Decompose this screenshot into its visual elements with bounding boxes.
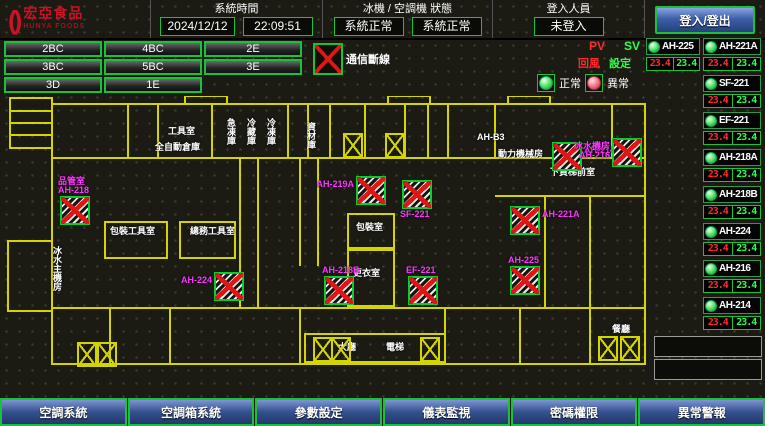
device-AH-218B[interactable]: AH-218B xyxy=(324,276,354,305)
nav-button-參數設定[interactable]: 參數設定 xyxy=(255,398,382,426)
unit-sv-value: 23.4 xyxy=(733,58,761,70)
room-label: 包裝工具室 xyxy=(110,226,155,236)
comm-fail-device-icon xyxy=(510,206,540,235)
device-label: 冰水機房AH-216 xyxy=(574,142,610,160)
device-EF-221[interactable]: EF-221 xyxy=(408,276,438,305)
unit-name: AH-221A xyxy=(719,41,757,52)
floor-plan: 工具室全自動倉庫急凍庫冷藏庫冷凍庫資材庫AH-B3動力機械房下貨梯前室包裝工具室… xyxy=(0,96,650,398)
comm-fail-icon xyxy=(313,43,343,75)
elevator-icon xyxy=(343,133,363,158)
room-label: 動力機械房 xyxy=(498,149,543,159)
unit-AH-214[interactable]: AH-21423.423.4 xyxy=(703,297,761,330)
elevator-icon xyxy=(331,337,351,362)
unit-pv-value: 23.4 xyxy=(704,317,733,329)
system-time-value: 22:09:51 xyxy=(243,17,313,36)
device-label: AH-225 xyxy=(508,256,539,265)
unit-sv-value: 23.4 xyxy=(733,132,761,144)
pv-label: PV xyxy=(589,39,605,53)
unit-pv-value: 23.4 xyxy=(704,243,733,255)
normal-led-icon xyxy=(537,74,555,92)
floor-button-5BC[interactable]: 5BC xyxy=(104,59,202,75)
device-AH-224[interactable]: AH-224 xyxy=(214,272,244,301)
system-time-label: 系統時間 xyxy=(151,2,322,16)
unit-status-led xyxy=(705,78,717,90)
elevator-icon xyxy=(420,337,440,362)
room-label: 電梯 xyxy=(386,342,404,352)
unit-AH-224[interactable]: AH-22423.423.4 xyxy=(703,223,761,256)
device-AH-219A[interactable]: AH-219A xyxy=(356,176,386,205)
comm-fail-device-icon xyxy=(408,276,438,305)
room-label: 全自動倉庫 xyxy=(155,142,200,152)
unit-pv-value: 23.4 xyxy=(647,58,674,70)
floor-button-3BC[interactable]: 3BC xyxy=(4,59,102,75)
floor-button-4BC[interactable]: 4BC xyxy=(104,41,202,57)
device-label: EF-221 xyxy=(406,266,436,275)
elevator-icon xyxy=(620,336,640,361)
abnormal-label: 異常 xyxy=(607,75,629,91)
return-air-label: 回風 xyxy=(578,55,600,71)
unit-sv-value: 23.4 xyxy=(733,243,761,255)
device-AH-218[interactable]: 品管室AH-218 xyxy=(60,196,90,225)
unit-pv-value: 23.4 xyxy=(704,206,733,218)
login-status-value: 未登入 xyxy=(534,17,604,36)
nav-button-密碼權限[interactable]: 密碼權限 xyxy=(511,398,638,426)
elevator-icon xyxy=(313,337,333,362)
comm-fail-label: 通信斷線 xyxy=(346,51,390,67)
system-date-value: 2024/12/12 xyxy=(160,17,234,36)
floor-button-2E[interactable]: 2E xyxy=(204,41,302,57)
room-label: 急凍庫 xyxy=(226,118,236,145)
hmi-screen: () 宏亞食品 HUNYA FOODS 系統時間 2024/12/12 22:0… xyxy=(0,0,765,426)
device-label: 品管室AH-218 xyxy=(58,177,89,195)
comm-fail-device-icon xyxy=(510,266,540,295)
unit-name: AH-224 xyxy=(719,226,750,237)
login-user-label: 登入人員 xyxy=(493,2,644,16)
unit-status-led xyxy=(705,226,717,238)
device-label: AH-224 xyxy=(181,276,212,285)
unit-sv-value: 23.4 xyxy=(733,206,761,218)
unit-SF-221[interactable]: SF-22123.423.4 xyxy=(703,75,761,108)
room-label: 餐廳 xyxy=(612,324,630,334)
unit-pv-value: 23.4 xyxy=(704,132,733,144)
brand-logo: () 宏亞食品 HUNYA FOODS xyxy=(0,0,150,38)
hvac-status-label: 冰機 / 空調機 狀態 xyxy=(323,2,492,16)
room-label: 冷藏庫 xyxy=(246,118,256,145)
room-label: 總務工具室 xyxy=(190,226,235,236)
device-SF-221[interactable]: SF-221 xyxy=(402,180,432,209)
unit-name: AH-218A xyxy=(719,152,757,163)
header: () 宏亞食品 HUNYA FOODS 系統時間 2024/12/12 22:0… xyxy=(0,0,765,40)
unit-AH-218A[interactable]: AH-218A23.423.4 xyxy=(703,149,761,182)
device-label: AH-218B xyxy=(322,266,360,275)
device-label: SF-221 xyxy=(400,210,430,219)
room-label: 包裝室 xyxy=(356,222,383,232)
comm-fail-device-icon xyxy=(214,272,244,301)
unit-EF-221[interactable]: EF-22123.423.4 xyxy=(703,112,761,145)
unit-status-led xyxy=(705,152,717,164)
unit-pv-value: 23.4 xyxy=(704,95,733,107)
device-AH-225[interactable]: AH-225 xyxy=(510,266,540,295)
device-AH-216[interactable]: 冰水機房AH-216 xyxy=(612,138,642,167)
unit-status-led xyxy=(705,189,717,201)
elevator-icon xyxy=(77,342,97,367)
login-logout-button[interactable]: 登入/登出 xyxy=(655,6,755,34)
unit-sv-value: 23.4 xyxy=(733,169,761,181)
unit-pv-value: 23.4 xyxy=(704,58,733,70)
elevator-icon xyxy=(598,336,618,361)
unit-AH-225[interactable]: AH-22523.423.4 xyxy=(646,38,700,71)
floor-buttons: 2BC4BC2E3BC5BC3E3D1E xyxy=(4,41,308,93)
unit-AH-221A[interactable]: AH-221A23.423.4 xyxy=(703,38,761,71)
unit-status-led xyxy=(705,41,717,53)
unit-name: AH-218B xyxy=(719,189,757,200)
nav-button-空調箱系統[interactable]: 空調箱系統 xyxy=(128,398,255,426)
chiller-status-value: 系統正常 xyxy=(334,17,404,36)
room-label: 冰水主機房 xyxy=(52,246,62,291)
sv-label: SV xyxy=(624,39,640,53)
empty-unit-slot xyxy=(654,359,762,380)
comm-fail-device-icon xyxy=(356,176,386,205)
floor-button-3E[interactable]: 3E xyxy=(204,59,302,75)
unit-name: SF-221 xyxy=(719,78,749,89)
room-label: 工具室 xyxy=(168,126,195,136)
unit-name: AH-225 xyxy=(662,41,693,52)
unit-status-led xyxy=(705,300,717,312)
unit-AH-218B[interactable]: AH-218B23.423.4 xyxy=(703,186,761,219)
room-label: 冷凍庫 xyxy=(266,118,276,145)
footer-nav: 空調系統空調箱系統參數設定儀表監視密碼權限異常警報 xyxy=(0,398,765,426)
floor-button-2BC[interactable]: 2BC xyxy=(4,41,102,57)
unit-sv-value: 23.4 xyxy=(733,280,761,292)
unit-name: AH-216 xyxy=(719,263,750,274)
comm-fail-device-icon xyxy=(402,180,432,209)
unit-pv-value: 23.4 xyxy=(704,169,733,181)
unit-name: EF-221 xyxy=(719,115,749,126)
room-label: AH-B3 xyxy=(477,132,505,142)
brand-logo-icon: () xyxy=(8,7,19,33)
room-label: 資材庫 xyxy=(306,122,316,149)
normal-label: 正常 xyxy=(559,75,581,91)
comm-fail-device-icon xyxy=(612,138,642,167)
floor-button-3D[interactable]: 3D xyxy=(4,77,102,93)
nav-button-空調系統[interactable]: 空調系統 xyxy=(0,398,127,426)
nav-button-異常警報[interactable]: 異常警報 xyxy=(638,398,765,426)
unit-status-led xyxy=(705,115,717,127)
brand-name-en: HUNYA FOODS xyxy=(23,20,85,33)
empty-unit-slot xyxy=(654,336,762,357)
unit-sv-value: 23.4 xyxy=(733,95,761,107)
nav-button-儀表監視[interactable]: 儀表監視 xyxy=(383,398,510,426)
unit-status-led xyxy=(648,41,660,53)
abnormal-led-icon xyxy=(585,74,603,92)
floor-button-1E[interactable]: 1E xyxy=(104,77,202,93)
setpoint-label: 設定 xyxy=(609,55,631,71)
unit-sv-value: 23.4 xyxy=(733,317,761,329)
brand-name: 宏亞食品 xyxy=(23,7,85,20)
elevator-icon xyxy=(97,342,117,367)
comm-fail-device-icon xyxy=(60,196,90,225)
comm-fail-device-icon xyxy=(324,276,354,305)
device-label: AH-219A xyxy=(316,180,354,189)
ahu-status-value: 系統正常 xyxy=(412,17,482,36)
unit-AH-216[interactable]: AH-21623.423.4 xyxy=(703,260,761,293)
device-label: AH-221A xyxy=(542,210,580,219)
unit-pv-value: 23.4 xyxy=(704,280,733,292)
elevator-icon xyxy=(385,133,405,158)
unit-sv-value: 23.4 xyxy=(674,58,700,70)
unit-status-led xyxy=(705,263,717,275)
unit-name: AH-214 xyxy=(719,300,750,311)
device-AH-221A[interactable]: AH-221A xyxy=(510,206,540,235)
state-legend: 正常 異常 xyxy=(537,74,629,92)
